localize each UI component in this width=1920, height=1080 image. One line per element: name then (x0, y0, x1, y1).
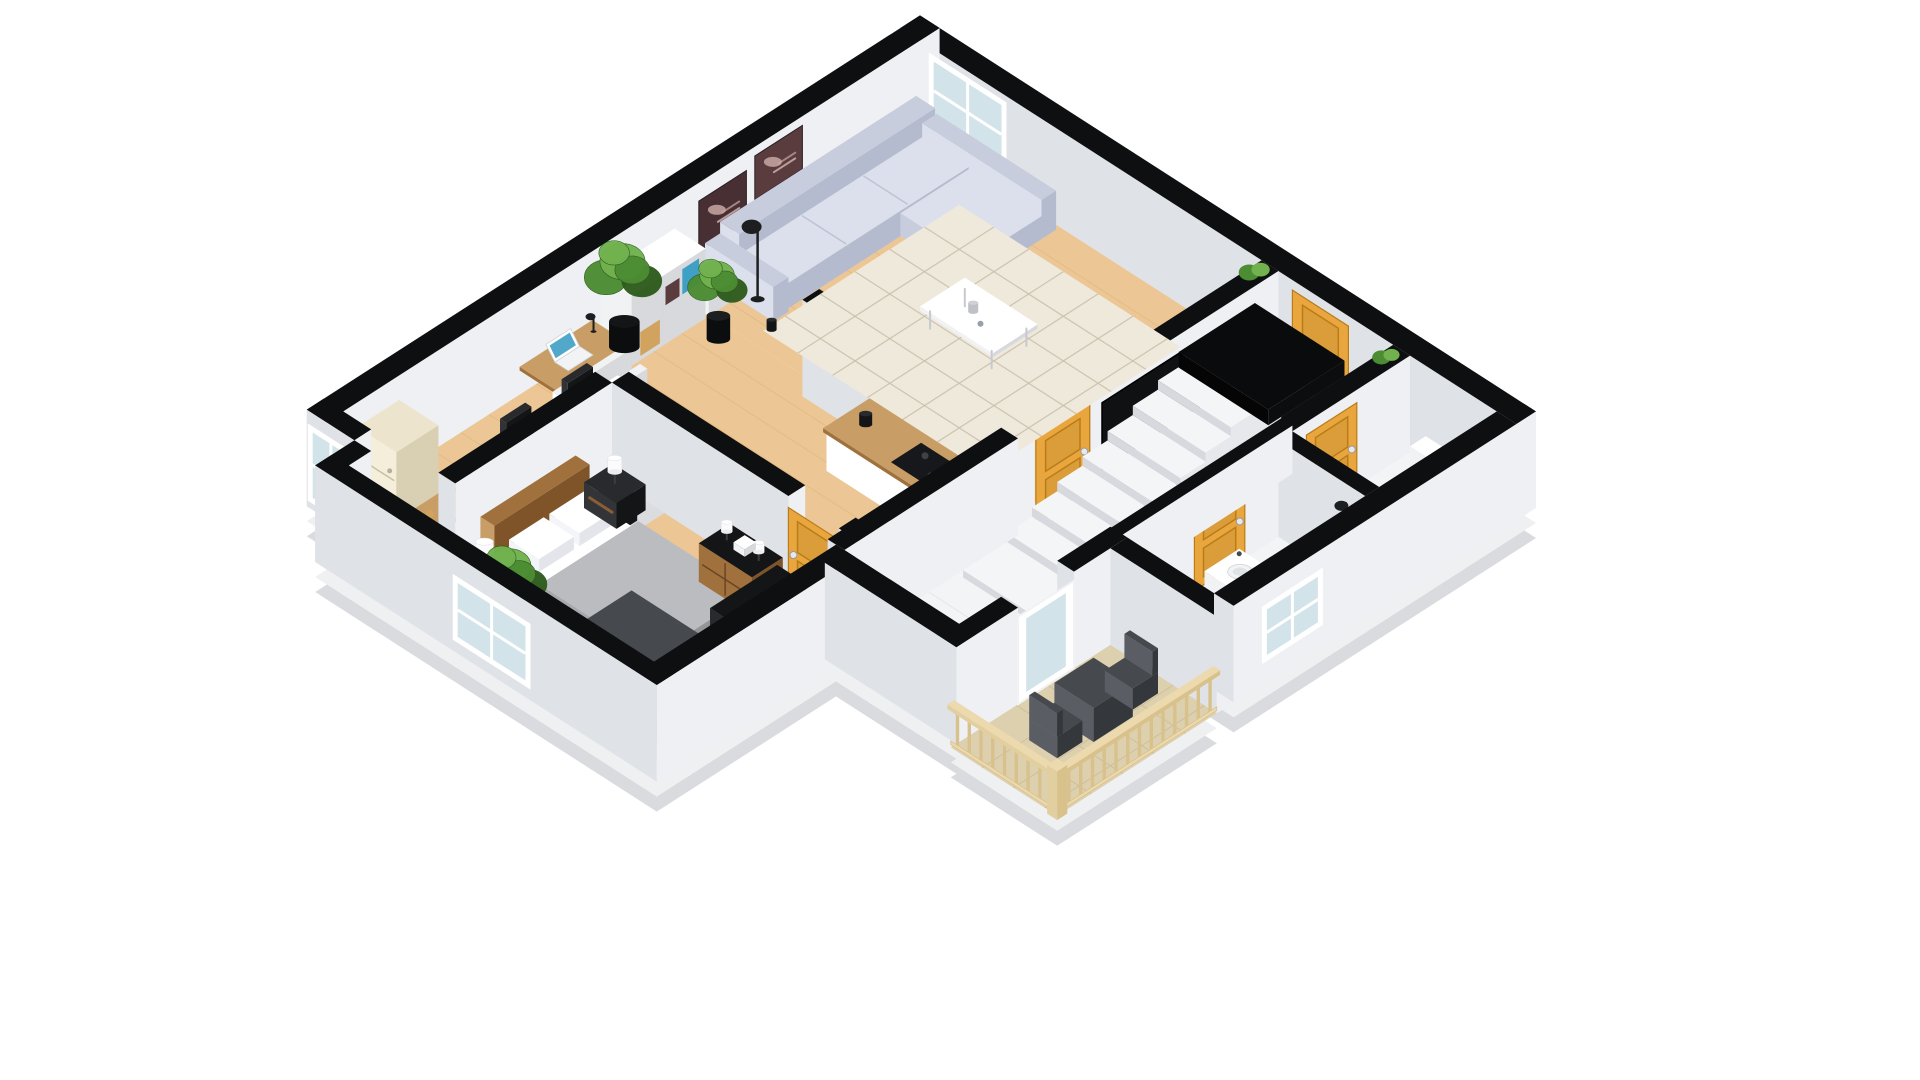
cooktop-burner-1 (922, 452, 929, 459)
coffee-table-decor (977, 321, 983, 327)
balcony-railing-post (1047, 758, 1067, 820)
floorplan-3d-render (0, 0, 1920, 1080)
kettle (859, 411, 872, 427)
fridge-handle (387, 468, 392, 473)
coffee-table-vase (968, 301, 978, 314)
floorplan-viewport (0, 0, 1920, 1080)
decor-bowl (767, 318, 777, 332)
